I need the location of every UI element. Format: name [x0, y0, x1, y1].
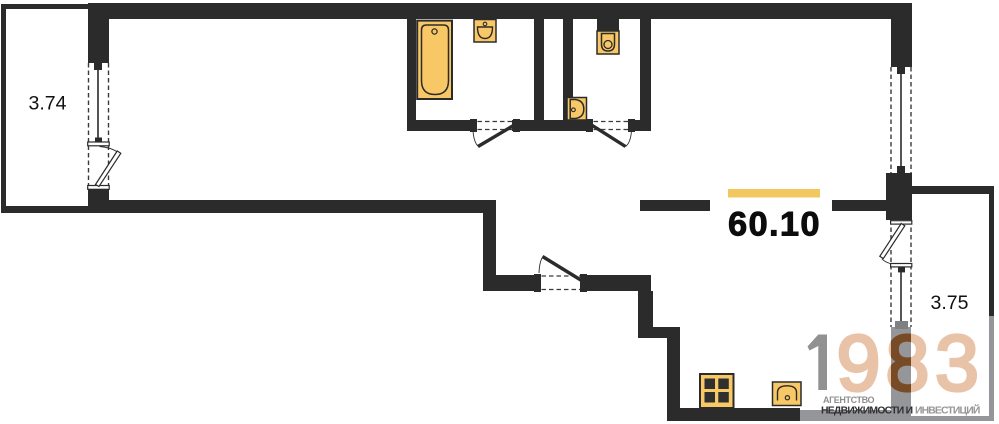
svg-text:НЕДВИЖИМОСТИ И: НЕДВИЖИМОСТИ И	[821, 406, 913, 417]
svg-text:3: 3	[935, 318, 979, 407]
svg-text:АГЕНТСТВО: АГЕНТСТВО	[823, 395, 874, 405]
svg-text:3.75: 3.75	[931, 292, 969, 314]
svg-text:60.10: 60.10	[728, 206, 821, 244]
svg-text:ИНВЕСТИЦИЙ: ИНВЕСТИЦИЙ	[915, 404, 980, 417]
svg-text:9: 9	[837, 318, 881, 407]
svg-text:3.74: 3.74	[29, 93, 67, 115]
